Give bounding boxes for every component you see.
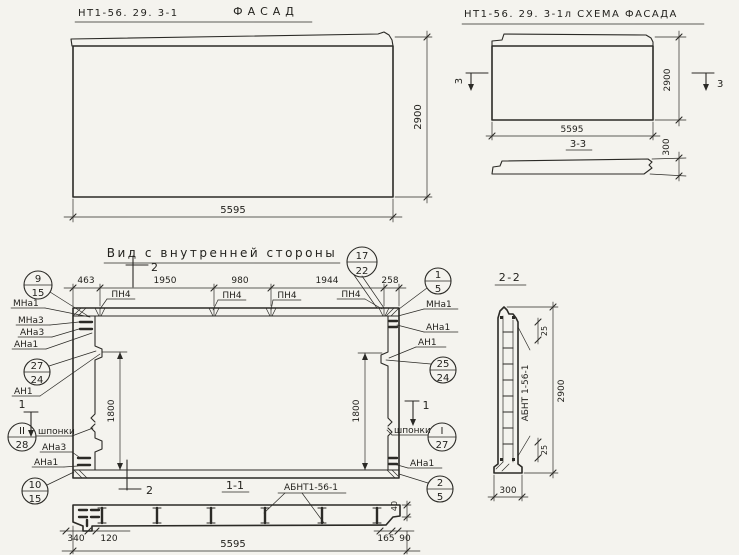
schema-cut-mark-left: 3 (454, 73, 488, 91)
section-1-1: 1-1 АБНТ1-56-1 340 120 (60, 479, 420, 554)
dim-25: 25 (540, 326, 549, 336)
callout-top: II (19, 426, 25, 437)
schema-cut-right-label: 3 (717, 79, 723, 90)
panel-working-drawing: НТ1-56. 29. 3-1 ФАСАД 5595 2900 НТ1-56. … (0, 0, 739, 555)
cut-1-label: 1 (423, 399, 430, 412)
callout-bottom: 24 (31, 375, 44, 386)
embedded-channel (79, 510, 99, 526)
facade-width-dim: 5595 (64, 199, 402, 222)
callout-top: 9 (35, 274, 41, 285)
dim-2900: 2900 (557, 379, 567, 402)
schema-title: НТ1-56. 29. 3-1л СХЕМА ФАСАДА (464, 9, 678, 20)
inner-side-view: Вид с внутренней стороны 17 22 2 (8, 246, 458, 505)
schema-outline (492, 46, 653, 120)
callout-top: 10 (29, 480, 42, 491)
section-2-2-height-dim: 2900 (507, 302, 567, 478)
right-callouts: 1 5 МНа1 АНа1 АН1 25 24 шпонки I 27 АНа1 (386, 268, 458, 503)
callout-bottom: 5 (437, 492, 443, 503)
callout-bottom: 22 (356, 266, 369, 277)
top-strip-marks (73, 308, 399, 478)
section-2-2-dim-25-top: 25 (535, 318, 549, 344)
mark-label: АНа1 (34, 458, 58, 468)
schema-width-dim: 5595 (486, 122, 660, 140)
cut-2-label: 2 (146, 484, 153, 497)
keys-label: шпонки (38, 427, 75, 437)
dim-300: 300 (499, 486, 516, 496)
callout-top: 27 (31, 361, 44, 372)
inner-view-title: Вид с внутренней стороны (107, 246, 337, 260)
schema-cut-mark-right: 3 (692, 73, 723, 91)
keys-label: шпонки (394, 426, 431, 436)
pn4-label: ПН4 (111, 290, 131, 300)
mark-label: МНа3 (18, 316, 44, 326)
callout-top: 25 (437, 359, 450, 370)
inner-height-dim-right: 1800 (352, 353, 382, 470)
rib-sections (98, 508, 381, 523)
section-2-2-dim-25-bottom: 25 (535, 438, 549, 462)
facade-height-dim: 2900 (395, 31, 432, 203)
facade-top-flange (71, 32, 393, 46)
cut-mark-1-right: 1 (405, 399, 430, 426)
drawing-sheet: НТ1-56. 29. 3-1 ФАСАД 5595 2900 НТ1-56. … (0, 0, 739, 555)
schema-thickness-value: 300 (662, 138, 672, 155)
mark-label: АНа1 (426, 323, 450, 333)
facade-outline (73, 46, 393, 197)
panel-outline (73, 308, 399, 478)
callout-top: I (441, 426, 444, 437)
dim-90: 90 (399, 534, 411, 544)
mark-label: АНа3 (42, 443, 66, 453)
callout-top: 2 (437, 478, 443, 489)
mark-label: МНа1 (13, 299, 39, 309)
schema-height-value: 2900 (663, 68, 673, 91)
facade-width-value: 5595 (220, 205, 245, 216)
ladder-reinforcement (496, 316, 515, 471)
dim-1800: 1800 (107, 399, 117, 422)
cut-1-label: 1 (19, 398, 26, 411)
pn4-label: ПН4 (222, 291, 242, 301)
seg-dim: 980 (231, 276, 248, 286)
seg-dim: 258 (381, 276, 398, 286)
schema-thickness-dim: 300 (650, 138, 686, 181)
mark-label: АНа1 (410, 459, 434, 469)
dim-1800: 1800 (352, 399, 362, 422)
callout-top: 17 (356, 251, 369, 262)
dim-5595: 5595 (220, 539, 245, 550)
facade-code: НТ1-56. 29. 3-1 (78, 8, 179, 19)
callout-bottom: 5 (435, 284, 441, 295)
mark-label: МНа1 (426, 300, 452, 310)
mark-label: АНа3 (20, 328, 44, 338)
panel-left-rib (78, 316, 102, 470)
mark-label: АНа1 (14, 340, 38, 350)
dim-120: 120 (100, 534, 117, 544)
section-2-2-width-dim: 300 (488, 475, 528, 501)
callout-bottom: 24 (437, 373, 450, 384)
schema-cut-left-label: 3 (454, 78, 465, 84)
panel-right-rib (381, 316, 397, 470)
section-2-2-title: 2-2 (499, 271, 521, 284)
mark-label: АН1 (418, 338, 437, 348)
callout-bottom: 15 (29, 494, 42, 505)
callout-bottom: 15 (32, 288, 45, 299)
schema-height-dim: 2900 (655, 31, 686, 126)
pn4-label: ПН4 (277, 291, 297, 301)
callout-top: 1 (435, 270, 441, 281)
callout-bottom: 27 (436, 440, 449, 451)
schema-top-flange (492, 34, 653, 46)
pn4-label: ПН4 (341, 290, 361, 300)
inner-height-dim-left: 1800 (102, 352, 127, 470)
dim-165: 165 (377, 534, 394, 544)
dim-340: 340 (67, 534, 84, 544)
schema-width-value: 5595 (561, 125, 584, 135)
section-3-3-profile (492, 159, 652, 174)
seg-dim: 463 (77, 276, 94, 286)
section-2-2: 2-2 АБНТ 1-56-1 25 (488, 271, 567, 501)
facade-name: ФАСАД (233, 5, 299, 18)
seg-dim: 1950 (154, 276, 177, 286)
section-1-1-outline (73, 505, 400, 531)
part-label-abnt-vertical: АБНТ 1-56-1 (521, 365, 531, 422)
mark-label: АН1 (14, 387, 33, 397)
section-3-3-title: 3-3 (570, 139, 586, 150)
callout-bottom: 28 (16, 440, 29, 451)
cut-2-label: 2 (151, 261, 158, 274)
facade-height-value: 2900 (413, 104, 424, 129)
facade-schema-view: НТ1-56. 29. 3-1л СХЕМА ФАСАДА 3 3 5595 (454, 9, 723, 181)
section-1-1-dims-left: 340 120 (60, 528, 130, 544)
facade-view: НТ1-56. 29. 3-1 ФАСАД 5595 2900 (64, 5, 432, 222)
dim-25: 25 (540, 445, 549, 455)
seg-dim: 1944 (316, 276, 339, 286)
pn4-labels: ПН4 ПН4 ПН4 ПН4 (100, 290, 382, 310)
section-1-1-title: 1-1 (226, 479, 244, 492)
dim-40: 40 (390, 501, 399, 511)
part-label-abnt: АБНТ1-56-1 (284, 483, 338, 493)
